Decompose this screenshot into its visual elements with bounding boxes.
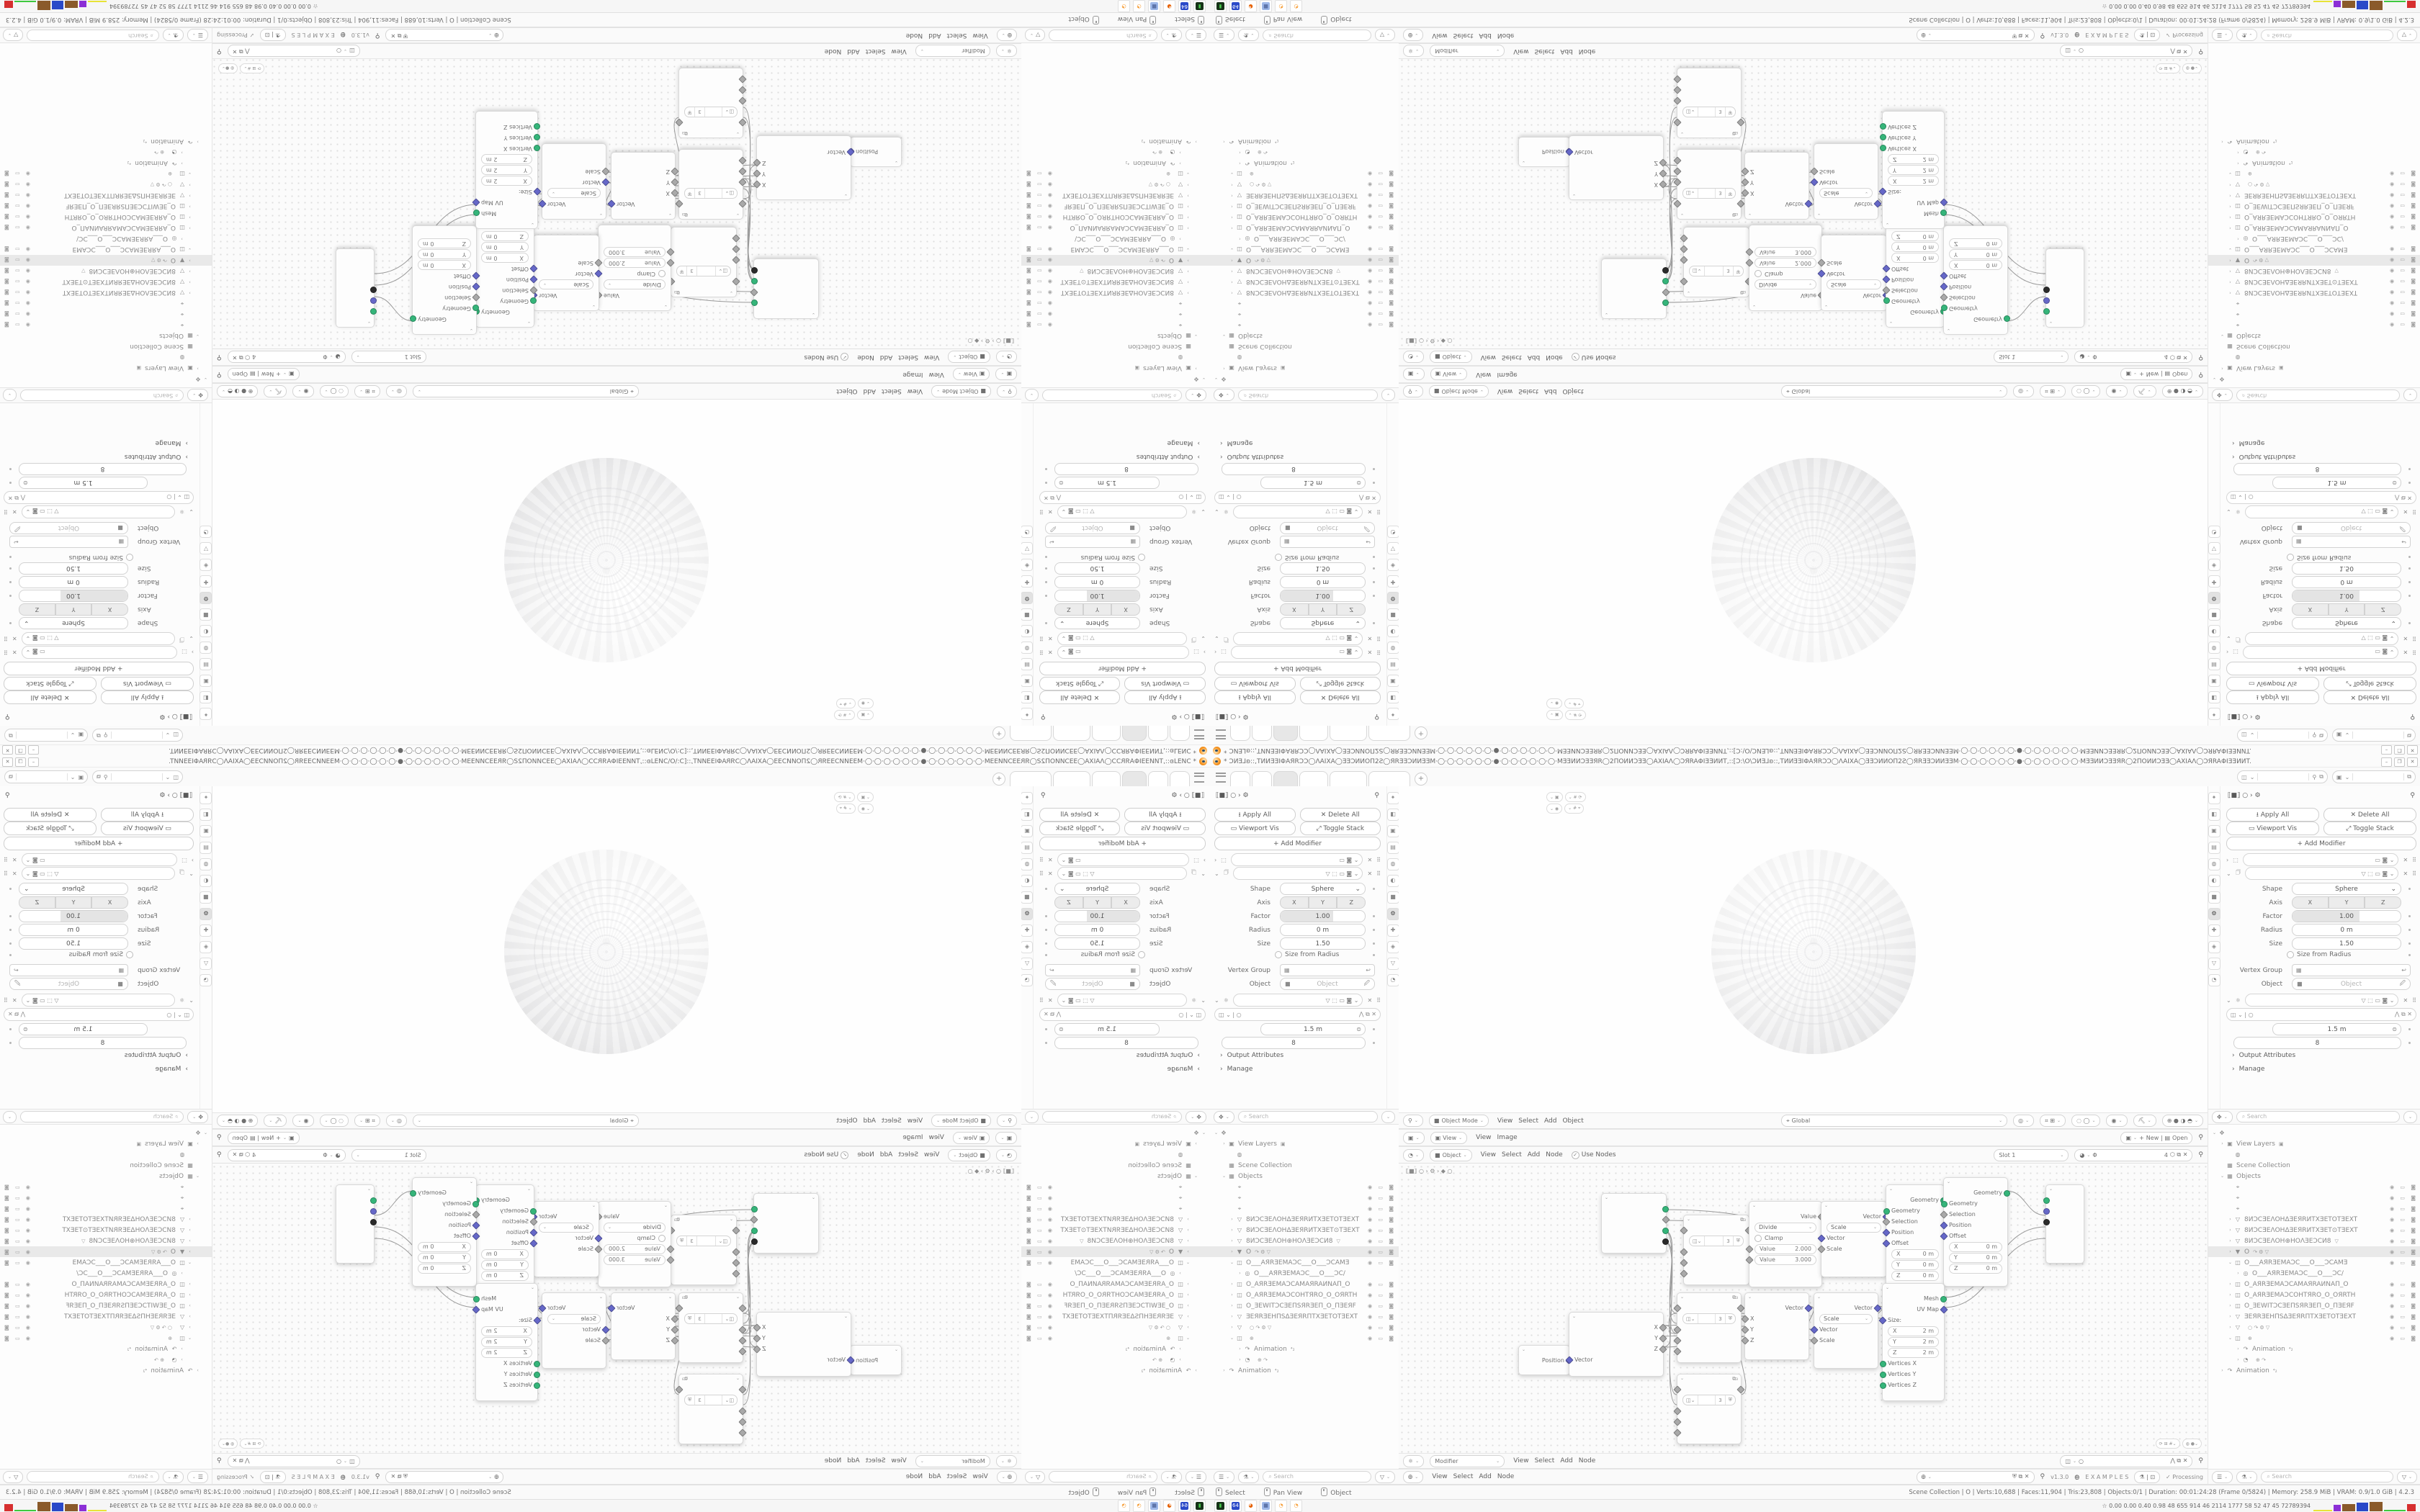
visibility-toggles[interactable]: ◉ ▭ ◙	[1368, 312, 1399, 318]
node-separate-xyz[interactable]: ⌄XYZVector	[1569, 135, 1664, 200]
visibility-toggles[interactable]: ◉ ▭ ◙	[1368, 171, 1399, 177]
properties-tab-11[interactable]: ◔	[2208, 526, 2220, 538]
menu-icon[interactable]	[1194, 729, 1204, 739]
manage-section[interactable]: › Manage	[1220, 439, 1252, 446]
node-int-3-a[interactable]: ⌄⧉₃◫⌄3⛨	[1683, 1215, 1749, 1285]
outliner-row[interactable]: ›▣View Layers▣	[1210, 363, 1399, 374]
menu-view[interactable]: View	[928, 371, 944, 378]
properties-tab-5[interactable]: ◐	[1021, 875, 1034, 887]
workspace-tab[interactable]	[1368, 771, 1410, 786]
node-vecmath-scale-b[interactable]: ⌄VectorScale⌄VectorScale	[1814, 143, 1878, 220]
outliner-row[interactable]: ◍	[1210, 1149, 1399, 1160]
menu-view[interactable]: View	[1513, 48, 1528, 55]
apply-all-button[interactable]: ⭳ Apply All	[101, 808, 194, 822]
outliner-search-input[interactable]: ⌕ Search	[1238, 390, 1378, 401]
modifier-smooth-row[interactable]: ▭ ◙ ⌄	[1057, 853, 1190, 866]
outliner-row[interactable]: ›▽ƎEЯRƎEHПSΔƎEЯRПTXƎETOTƎEXT◉ ▭ ◙	[1021, 1311, 1210, 1322]
filter-dropdown[interactable]: ⌄	[1381, 1111, 1395, 1123]
node-separate-xyz[interactable]: ⌄XYZVector	[756, 135, 851, 200]
outliner-row[interactable]: ⌖◉ ▭ ◙	[0, 1192, 212, 1203]
modifier-dropdown[interactable]: Modifier⌄	[1430, 45, 1505, 58]
properties-tab-8[interactable]: ✚	[200, 575, 212, 588]
editor-type-icon[interactable]: ☰⌄	[1214, 30, 1234, 42]
mode-dropdown[interactable]: ■ Object Mode⌄	[1429, 1115, 1489, 1127]
calculator-icon[interactable]: ▦	[1260, 1500, 1272, 1512]
properties-tab-10[interactable]: ▽	[200, 542, 212, 554]
cast-object-field[interactable]: ■Object🖉	[9, 522, 128, 534]
properties-tab-1[interactable]: ◧	[200, 691, 212, 703]
add-workspace-button[interactable]: +	[992, 773, 1005, 786]
close-button[interactable]: ✕	[2407, 757, 2418, 767]
filter-dropdown[interactable]: ⌄	[3, 390, 17, 402]
node-group-a[interactable]: ⌄	[753, 258, 819, 319]
properties-tab-7[interactable]: ⚙	[2208, 592, 2220, 604]
asset-buttons[interactable]: ⚗ | ⊡	[260, 30, 286, 42]
viewport-vis-button[interactable]: ▭ Viewport Vis	[2226, 822, 2319, 835]
workspace-tab[interactable]	[1053, 771, 1090, 786]
properties-tab-9[interactable]: ◈	[200, 941, 212, 953]
properties-tab-3[interactable]: ▤	[200, 842, 212, 854]
menu-object[interactable]: Object	[1562, 1117, 1583, 1125]
editor-type-icon[interactable]: ⚲⌄	[1403, 385, 1423, 397]
outliner-search-input[interactable]: ⌕ Search	[1042, 1111, 1182, 1122]
properties-tab-1[interactable]: ◧	[1021, 691, 1034, 703]
modifier-geonodes-row[interactable]: ▽ ⬚ ▭ ◙ ⌄	[2245, 505, 2399, 518]
editor-pill[interactable]: ⌄ ◉	[1546, 804, 1562, 814]
cast-size-field[interactable]: 1.50	[1280, 937, 1366, 950]
properties-tab-5[interactable]: ◐	[200, 875, 212, 887]
editor-type-icon[interactable]: Ꚛ⌄	[997, 30, 1017, 42]
properties-tab-2[interactable]: ▣	[200, 675, 212, 687]
properties-tab-10[interactable]: ▽	[1021, 542, 1034, 554]
delete-modifier-icon[interactable]: ✕	[1048, 857, 1053, 863]
gizmo-toggle[interactable]: ◉⌄	[2106, 385, 2127, 397]
apply-all-button[interactable]: ⭳ Apply All	[2226, 808, 2319, 822]
display-mode-icon[interactable]: ⚗⌄	[1238, 1471, 1259, 1483]
firefox-icon[interactable]: ◕	[1245, 0, 1257, 12]
delete-modifier-icon[interactable]: ✕	[12, 997, 17, 1004]
visibility-toggles[interactable]: ◉ ▭ ◙	[2390, 247, 2420, 253]
outliner-row[interactable]: ⌄◫O___AЯRƎEMAƆC___O___ƆCAMƎ◉ ▭ ◙	[0, 244, 212, 255]
slot-dropdown[interactable]: Slot 1⌄	[351, 1149, 426, 1161]
outliner-row[interactable]: ›◔⊕ ↷	[0, 147, 212, 158]
geonodes-input-2[interactable]: 8	[1054, 463, 1198, 475]
material-selector[interactable]: ◕⌄ Φ4 ⬡ ⧉ ✕	[2074, 1149, 2192, 1161]
menu-node[interactable]: Node	[1546, 1151, 1563, 1158]
visibility-toggles[interactable]: ◉ ▭ ◙	[0, 269, 30, 274]
modifier-geonodes-row[interactable]: ▽ ⬚ ▭ ◙ ⌄	[22, 994, 176, 1007]
viewport-vis-button[interactable]: ▭ Viewport Vis	[101, 822, 194, 835]
toggle-stack-button[interactable]: ⤢ Toggle Stack	[1039, 822, 1121, 835]
visibility-toggles[interactable]: ◉ ▭ ◙	[2390, 323, 2420, 328]
workspace-tab[interactable]	[1170, 771, 1190, 786]
add-modifier-button[interactable]: + Add Modifier	[1214, 837, 1381, 850]
outliner-row[interactable]: ›▽8ИƆCƎEΛOHΔƎEЯRИTXƎETOTƎEXT◉ ▭ ◙	[1210, 287, 1399, 298]
workspace-tab[interactable]	[1122, 726, 1147, 741]
node-set-position-b[interactable]: ⌄GeometryGeometrySelectionPositionOffset…	[412, 225, 477, 335]
add-modifier-button[interactable]: + Add Modifier	[2226, 662, 2416, 675]
pin-icon[interactable]: ⚲	[2040, 1473, 2045, 1480]
node-collapsed-out[interactable]: ⌄	[2045, 1184, 2084, 1264]
modifier-dropdown[interactable]: Modifier⌄	[915, 1455, 990, 1467]
visibility-toggles[interactable]: ◉ ▭ ◙	[1021, 225, 1052, 231]
properties-tab-10[interactable]: ▽	[1387, 542, 1399, 554]
nodegroup-selector[interactable]: Ꚛ⌄⛨ ⧉ ✕	[1917, 1471, 2035, 1483]
geonodes-menus[interactable]: ViewSelectAddNode	[903, 32, 991, 39]
menu-select[interactable]: Select	[1502, 354, 1522, 361]
properties-tab-2[interactable]: ▣	[2208, 825, 2220, 837]
properties-tab-8[interactable]: ✚	[1387, 575, 1399, 588]
visibility-toggles[interactable]: ◉ ▭ ◙	[2390, 215, 2420, 220]
properties-tab-7[interactable]: ⚙	[200, 908, 212, 920]
menu-view[interactable]: View	[1476, 1134, 1491, 1141]
editor-pill[interactable]: ⌄ ▣	[857, 792, 874, 802]
visibility-toggles[interactable]: ◉ ▭ ◙	[2390, 204, 2420, 210]
nodegroup-selector[interactable]: Ꚛ⌄⛨ ⧉ ✕	[1917, 30, 2035, 42]
modifier-dropdown[interactable]: Modifier⌄	[915, 45, 990, 58]
outliner-row[interactable]: ›▣View Layers▣	[1021, 1138, 1210, 1149]
outliner-row[interactable]: ◍	[1021, 1149, 1210, 1160]
properties-tab-6[interactable]: ■	[1021, 891, 1034, 904]
id-datablock-selector[interactable]: ▣⌄⧉	[4, 729, 88, 742]
greeble-sphere-object[interactable]	[1711, 458, 1916, 662]
node-int-3-a[interactable]: ⌄⧉₃◫⌄3⛨	[1683, 227, 1749, 297]
outliner-row[interactable]: ⌖◉ ▭ ◙	[0, 320, 212, 330]
delete-all-button[interactable]: ✕ Delete All	[1300, 690, 1381, 704]
outliner-row[interactable]: ▦Scene Collection	[2208, 1160, 2420, 1171]
cast-shape-dropdown[interactable]: Sphere⌄	[1054, 883, 1140, 895]
image-new-button[interactable]: ▣⌄ + New | ▤ Open	[2120, 1132, 2192, 1144]
viewport-menus[interactable]: ViewSelectAddObject	[833, 388, 926, 395]
outliner-row[interactable]: ›▼O↷ ⚙ ▽◉ ▭ ◙	[0, 1246, 212, 1257]
outliner-row[interactable]: ›▣View Layers▣	[1021, 363, 1210, 374]
nodetree-selector[interactable]: ◫⌄ ○ ⋀ ⧉ ✕	[2060, 45, 2192, 58]
cast-factor-field[interactable]: 1.00	[19, 910, 128, 922]
visibility-toggles[interactable]: ◉ ▭ ◙	[1021, 1249, 1052, 1255]
node-combine-xyz[interactable]: ⌄VectorXYZ	[1744, 152, 1809, 220]
visibility-toggles[interactable]: ◉ ▭ ◙	[1368, 1282, 1399, 1287]
visibility-toggles[interactable]: ◉ ▭ ◙	[1368, 215, 1399, 220]
add-modifier-button[interactable]: + Add Modifier	[4, 837, 194, 850]
outliner-row[interactable]: ⌖◉ ▭ ◙	[2208, 298, 2420, 309]
image-new-button[interactable]: ▣⌄ + New | ▤ Open	[2120, 369, 2192, 381]
menu-select[interactable]: Select	[1453, 32, 1474, 39]
visibility-toggles[interactable]: ◉ ▭ ◙	[0, 1282, 30, 1287]
floppy-64-icon[interactable]: 64	[1178, 1500, 1191, 1512]
visibility-toggles[interactable]: ◉ ▭ ◙	[0, 1260, 30, 1266]
node-cube[interactable]: ⌄MeshUV MapSize:X2 mY2 mZ2 mVertices XVe…	[1882, 1283, 1945, 1401]
outliner-row[interactable]: ›◫O_AЯRƎEMAƆCOHTЯRO_O_OЯRTH◉ ▭ ◙	[2208, 212, 2420, 222]
id-datablock-selector[interactable]: ◫⌄⚲⧉	[92, 729, 183, 742]
outliner-row[interactable]: ⌖◉ ▭ ◙	[0, 1203, 212, 1214]
pin-icon[interactable]: ⚲	[2410, 792, 2415, 799]
proportional-edit-toggle[interactable]: ◌ ◯⌄	[2071, 1115, 2101, 1127]
cast-axis-toggle[interactable]: XYZ	[19, 603, 128, 616]
snap-toggle[interactable]: ⌗ ⊞⌄	[354, 1115, 380, 1127]
editor-type-icon[interactable]: ▣⌄	[1403, 369, 1425, 381]
editor-pill[interactable]: ⌄ # ⟳	[1565, 792, 1586, 802]
outliner-row[interactable]: ›▽○ ↷ ⚙ ▽◉ ▭ ◙	[0, 1322, 212, 1333]
apply-all-button[interactable]: ⭳ Apply All	[1214, 690, 1296, 704]
node-cube[interactable]: ⌄MeshUV MapSize:X2 mY2 mZ2 mVertices XVe…	[1882, 111, 1945, 229]
node-collapsed-out[interactable]: ⌄	[2045, 248, 2084, 328]
snap-pill[interactable]: ⟳ ⊞ #⌄	[240, 63, 264, 73]
geonodes-input-2[interactable]: 8	[1054, 1037, 1198, 1049]
node-math-divide[interactable]: ⌄ValueDivide⌄ClampValue2.000Value3.000	[598, 225, 671, 311]
properties-tab-4[interactable]: ◍	[2208, 642, 2220, 654]
properties-tab-11[interactable]: ◔	[2208, 974, 2220, 986]
visibility-toggles[interactable]: ◉ ▭ ◙	[1021, 1336, 1052, 1341]
visibility-toggles[interactable]: ◉ ▭ ◙	[0, 171, 30, 177]
manage-section[interactable]: › Manage	[2232, 439, 2264, 446]
outliner-row[interactable]: ›▽8ИƆCƎEΛOH⊕HOΛƎEƆCИ8▽◉ ▭ ◙	[0, 266, 212, 276]
menu-view[interactable]: View	[972, 1473, 987, 1480]
cast-factor-field[interactable]: 1.00	[1280, 910, 1366, 922]
menu-object[interactable]: Object	[836, 388, 857, 395]
outliner-row[interactable]: ›◫O_AЯRƎEMAƆCAMAЯRAИNAП_O◉ ▭ ◙	[2208, 222, 2420, 233]
outliner-row[interactable]: ⌖◉ ▭ ◙	[1210, 1192, 1399, 1203]
delete-modifier-icon[interactable]: ✕	[1367, 870, 1372, 877]
editor-type-icon[interactable]: ⚲⌄	[1403, 1115, 1423, 1127]
properties-tab-0[interactable]: ✦	[200, 792, 212, 804]
delete-all-button[interactable]: ✕ Delete All	[1039, 690, 1121, 704]
outliner-row[interactable]: ›▣View Layers▣	[1210, 1138, 1399, 1149]
outliner-search-input[interactable]: ⌕ Search	[1049, 1471, 1157, 1482]
properties-tab-3[interactable]: ▤	[200, 658, 212, 670]
menu-select[interactable]: Select	[882, 1117, 902, 1125]
properties-tab-0[interactable]: ✦	[1387, 792, 1399, 804]
properties-tab-5[interactable]: ◐	[1021, 625, 1034, 637]
properties-tab-3[interactable]: ▤	[2208, 842, 2220, 854]
editor-pill[interactable]: ⌄ # ⌖	[1564, 804, 1584, 814]
outliner-search-input[interactable]: ⌕ Search	[1263, 30, 1371, 41]
visibility-toggles[interactable]: ◉ ▭ ◙	[1368, 1184, 1399, 1190]
properties-tab-2[interactable]: ▣	[1021, 675, 1034, 687]
menu-add[interactable]: Add	[1528, 354, 1540, 361]
display-mode-icon[interactable]: ⚗⌄	[163, 1471, 184, 1483]
workspace-tab[interactable]	[1122, 771, 1147, 786]
properties-tab-8[interactable]: ✚	[1021, 924, 1034, 937]
outliner-row[interactable]: ◍	[2208, 352, 2420, 363]
visibility-toggles[interactable]: ◉ ▭ ◙	[2390, 182, 2420, 188]
transform-orientation-dropdown[interactable]: ⌖ Global⌄	[413, 1115, 639, 1127]
workspace-tab[interactable]	[1010, 771, 1052, 786]
image-mode-dropdown[interactable]: ▣ View⌄	[953, 1132, 990, 1144]
outliner-row[interactable]: ›◎O___AЯRƎEMAƆC___O___ƆC/	[1210, 1268, 1399, 1279]
cast-axis-toggle[interactable]: XYZ	[19, 896, 128, 909]
output-attributes-section[interactable]: › Output Attributes	[1220, 1052, 1283, 1059]
workspace-tab[interactable]	[1170, 726, 1190, 741]
outliner-row[interactable]: ›▽8ИƆCƎEΛOHΔƎEЯRИTXƎET⊙TƎEXT◉ ▭ ◙	[0, 276, 212, 287]
visibility-toggles[interactable]: ◉ ▭ ◙	[2390, 1260, 2420, 1266]
visibility-toggles[interactable]: ◉ ▭ ◙	[2390, 225, 2420, 231]
visibility-toggles[interactable]: ◉ ▭ ◙	[1368, 1206, 1399, 1212]
pin-icon[interactable]: ⚲	[2198, 1457, 2203, 1464]
editor-type-icon[interactable]: ▣⌄	[995, 1132, 1017, 1144]
properties-tab-7[interactable]: ⚙	[1387, 592, 1399, 604]
geonodes-input-2[interactable]: 8	[2233, 463, 2401, 475]
firefox-icon[interactable]: ◕	[1163, 1500, 1175, 1512]
visibility-toggles[interactable]: ◉ ▭ ◙	[2390, 1228, 2420, 1233]
menu-image[interactable]: Image	[1497, 1134, 1518, 1141]
outliner-row[interactable]: ›▽8ИƆCƎEΛOHΔƎEЯRИTXƎETOTƎEXT◉ ▭ ◙	[1210, 1214, 1399, 1225]
toggle-stack-button[interactable]: ⤢ Toggle Stack	[2323, 822, 2416, 835]
modifier-smooth-row[interactable]: ▭ ◙ ⌄	[22, 646, 178, 659]
pin-icon[interactable]: ⚲	[1374, 713, 1379, 720]
filter-dropdown[interactable]: ▽⌄	[1025, 1471, 1045, 1483]
modifier-geonodes-row[interactable]: ▽ ⬚ ▭ ◙ ⌄	[1233, 994, 1363, 1007]
delete-modifier-icon[interactable]: ✕	[1048, 997, 1053, 1004]
editor-type-icon[interactable]: Ꚛ⌄	[1403, 30, 1423, 42]
overlays-toggle[interactable]: ⛏⌄	[2133, 385, 2156, 397]
visibility-toggles[interactable]: ◉ ▭ ◙	[1021, 1314, 1052, 1320]
visibility-toggles[interactable]: ◉ ▭ ◙	[0, 258, 30, 264]
visibility-toggles[interactable]: ◉ ▭ ◙	[1368, 290, 1399, 296]
shading-modes[interactable]: ⊕ ● ◑ ◓⌄	[2162, 385, 2203, 397]
editor-type-icon[interactable]: ☰⌄	[1186, 1471, 1206, 1483]
outliner-row[interactable]: ⌄▦Objects	[2208, 330, 2420, 341]
node-vecmath-scale-a[interactable]: ⌄VectorScale⌄VectorScale	[533, 235, 599, 311]
overlay-pill[interactable]: ◍ ●⌄	[218, 63, 238, 73]
nodegroup-selector-field[interactable]: ◫ ⌄ | ○ ⋀ ⧉ ✕	[2226, 1008, 2416, 1021]
modifier-geonodes-row[interactable]: ▽ ⬚ ▭ ◙ ⌄	[2245, 994, 2399, 1007]
workspace-tab[interactable]	[1330, 771, 1367, 786]
mode-dropdown[interactable]: ■ Object Mode⌄	[931, 1115, 991, 1127]
geonodes-input-2[interactable]: 8	[2233, 1037, 2401, 1049]
modifier-smooth-row[interactable]: ▭ ◙ ⌄	[1231, 853, 1363, 866]
visibility-toggles[interactable]: ◉ ▭ ◙	[2390, 1249, 2420, 1255]
visibility-toggles[interactable]: ◉ ▭ ◙	[2390, 1282, 2420, 1287]
output-attributes-section[interactable]: › Output Attributes	[1220, 453, 1283, 460]
outliner-row[interactable]: ⌄◫O___AЯRƎEMAƆC___O___ƆCAMƎ◉ ▭ ◙	[0, 1257, 212, 1268]
cast-factor-field[interactable]: 1.00	[19, 590, 128, 602]
outliner-row[interactable]: ⌄◫⊕◉ ▭ ◙	[1210, 168, 1399, 179]
visibility-toggles[interactable]: ◉ ▭ ◙	[0, 1325, 30, 1331]
image-menus[interactable]: ViewImage	[900, 371, 947, 378]
nodegroup-selector-field[interactable]: ◫ ⌄ | ○ ⋀ ⧉ ✕	[1039, 1008, 1206, 1021]
menu-image[interactable]: Image	[902, 371, 923, 378]
outliner-row[interactable]: ›◫O_AЯRƎEMAƆCOHTЯRO_O_OЯRTH◉ ▭ ◙	[1210, 212, 1399, 222]
vertex-group-field[interactable]: ▦↩	[1280, 536, 1375, 548]
outliner-row[interactable]: ›◫O_ƎEWITƆCƎEПSЯRƎEП_O_ПƎEЯF◉ ▭ ◙	[1021, 201, 1210, 212]
geonodes-input-1[interactable]: 1.5 m⊜	[1260, 1023, 1366, 1035]
modifier-cast-row[interactable]: ▽ ⬚ ▭ ◙ ⌄	[1057, 867, 1187, 880]
visibility-toggles[interactable]: ◉ ▭ ◙	[1368, 247, 1399, 253]
menu-add[interactable]: Add	[864, 388, 876, 395]
menu-select[interactable]: Select	[898, 1151, 918, 1158]
nodetree-selector[interactable]: ◫⌄ ○ ⋀ ⧉ ✕	[2060, 1455, 2192, 1467]
cast-radius-field[interactable]: 0 m	[1280, 924, 1366, 936]
outliner-search-input[interactable]: ⌕ Search	[20, 390, 184, 401]
pin-icon[interactable]: ⚲	[5, 792, 10, 799]
menu-add[interactable]: Add	[928, 1473, 941, 1480]
window-titlebar[interactable]: * ƆͶƎ⅃ʚ::,TͶͶƎƎIΦAЯRƆƆ◯ΛAIXA◯ƎƎƆͶͶOΠ2Ƨ◯Я…	[0, 744, 1210, 756]
slot-dropdown[interactable]: Slot 1⌄	[1994, 1149, 2069, 1161]
workspace-tab[interactable]	[1148, 726, 1168, 741]
visibility-toggles[interactable]: ◉ ▭ ◙	[1021, 1217, 1052, 1223]
editor-type-icon[interactable]: ◔⌄	[996, 1149, 1017, 1161]
output-attributes-section[interactable]: › Output Attributes	[125, 453, 188, 460]
gizmo-toggle[interactable]: ◉⌄	[293, 1115, 314, 1127]
menu-select[interactable]: Select	[1502, 1151, 1522, 1158]
outliner-row[interactable]: ⌄▦Objects	[1021, 330, 1210, 341]
mode-dropdown[interactable]: ■ Object Mode⌄	[1429, 385, 1489, 397]
properties-tab-1[interactable]: ◧	[2208, 809, 2220, 821]
menu-node[interactable]: Node	[1546, 354, 1563, 361]
cast-object-field[interactable]: ■Object🖉	[9, 978, 128, 990]
menu-view[interactable]: View	[972, 32, 987, 39]
outliner-row[interactable]: ›▽8ИƆCƎEΛOH⊕HOΛƎEƆCИ8▽◉ ▭ ◙	[1210, 1236, 1399, 1246]
shader-type-dropdown[interactable]: ■ Object⌄	[1430, 1149, 1472, 1161]
pin-icon[interactable]: ⚲	[2198, 1151, 2203, 1158]
workspace-tab[interactable]	[1252, 726, 1272, 741]
node-int-3-b[interactable]: ⌄⧉₃◫⌄3⛨	[678, 149, 743, 220]
visibility-toggles[interactable]: ◉ ▭ ◙	[2390, 1336, 2420, 1341]
outliner-search-input[interactable]: ⌕ Search	[1238, 1111, 1378, 1122]
geonodes-input-1[interactable]: 1.5 m⊜	[1054, 477, 1160, 489]
outliner-search-input[interactable]: ⌕ Search	[2236, 1111, 2400, 1122]
delete-modifier-icon[interactable]: ✕	[12, 857, 17, 863]
visibility-toggles[interactable]: ◉ ▭ ◙	[1021, 1282, 1052, 1287]
outliner-row[interactable]: ⌄✥	[1021, 1128, 1210, 1138]
menu-select[interactable]: Select	[1535, 1457, 1555, 1464]
workspace-tab[interactable]	[1230, 726, 1250, 741]
greeble-sphere-object[interactable]	[504, 850, 709, 1054]
filter-dropdown[interactable]: ▽⌄	[1375, 30, 1395, 42]
pin-icon[interactable]: ⚲	[2198, 354, 2203, 361]
modifier-smooth-row[interactable]: ▭ ◙ ⌄	[2243, 646, 2399, 659]
cast-radius-field[interactable]: 0 m	[1280, 576, 1366, 588]
toggle-stack-button[interactable]: ⤢ Toggle Stack	[1300, 677, 1381, 690]
id-datablock-selector[interactable]: ▣⌄⧉	[2332, 729, 2416, 742]
visibility-toggles[interactable]: ◉ ▭ ◙	[1368, 1336, 1399, 1341]
geonodes-input-1[interactable]: 1.5 m⊜	[19, 477, 148, 489]
outliner-row[interactable]: ⌄◫⊕◉ ▭ ◙	[2208, 1333, 2420, 1344]
modifier-cast-row[interactable]: ▽ ⬚ ▭ ◙ ⌄	[22, 867, 175, 880]
outliner-row[interactable]: ›▽8ИƆCƎEΛOH⊕HOΛƎEƆCИ8▽◉ ▭ ◙	[1021, 266, 1210, 276]
visibility-toggles[interactable]: ◉ ▭ ◙	[1021, 204, 1052, 210]
menu-add[interactable]: Add	[1560, 1457, 1572, 1464]
add-workspace-button[interactable]: +	[992, 726, 1005, 739]
outliner-row[interactable]: ›◔⊕ ↷	[1210, 147, 1399, 158]
menu-node[interactable]: Node	[857, 354, 874, 361]
outliner-row[interactable]: ⌄◫⊕◉ ▭ ◙	[1021, 1333, 1210, 1344]
outliner-row[interactable]: ›◫O_AЯRƎEMAƆCAMAЯRAИNAП_O◉ ▭ ◙	[1210, 1279, 1399, 1290]
outliner-row[interactable]: ›◎O___AЯRƎEMAƆC___O___ƆC/	[1021, 233, 1210, 244]
outliner-row[interactable]: ›▽8ИƆCƎEΛOHΔƎEЯRИTXƎET⊙TƎEXT◉ ▭ ◙	[1210, 276, 1399, 287]
outliner-row[interactable]: ›▽ƎEЯRƎEHПSΔƎEЯRПTXƎETOTƎEXT◉ ▭ ◙	[1210, 1311, 1399, 1322]
geonodes-input-2[interactable]: 8	[19, 1037, 187, 1049]
properties-tab-1[interactable]: ◧	[200, 809, 212, 821]
asset-buttons[interactable]: ⚗ | ⊡	[2134, 1471, 2160, 1483]
outliner-search-input[interactable]: ⌕ Search	[20, 1111, 184, 1122]
node-int-3-c[interactable]: ⌄⧉₃◫⌄3⛨	[678, 68, 743, 138]
output-attributes-section[interactable]: › Output Attributes	[1137, 1052, 1200, 1059]
editor-pill[interactable]: ⌄ # ⟳	[1565, 710, 1586, 720]
outliner-row[interactable]: ⌄▦Objects	[2208, 1171, 2420, 1182]
pin-icon[interactable]: ⚲	[2410, 713, 2415, 720]
node-collapsed-out[interactable]: ⌄	[336, 1184, 375, 1264]
geonodes-input-1[interactable]: 1.5 m⊜	[2272, 477, 2401, 489]
visibility-toggles[interactable]: ◉ ▭ ◙	[1021, 301, 1052, 307]
id-datablock-selector[interactable]: ▣⌄⧉	[4, 770, 88, 783]
visibility-toggles[interactable]: ◉ ▭ ◙	[0, 247, 30, 253]
editor-type-icon[interactable]: ☰⌄	[2212, 30, 2233, 42]
filter-dropdown[interactable]: ⌄	[2403, 390, 2417, 402]
node-combine-xyz[interactable]: ⌄VectorXYZ	[611, 152, 676, 220]
outliner-row[interactable]: ›◫O_ƎEWITƆCƎEПSЯRƎEП_O_ПƎEЯF◉ ▭ ◙	[1210, 1300, 1399, 1311]
outliner-search-input[interactable]: ⌕ Search	[2261, 30, 2393, 41]
